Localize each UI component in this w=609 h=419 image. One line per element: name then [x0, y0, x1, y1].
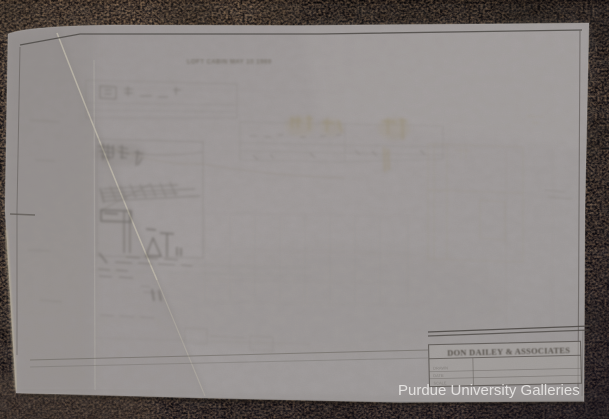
svg-text:Purdue University Galleries: Purdue University Galleries — [398, 382, 580, 399]
